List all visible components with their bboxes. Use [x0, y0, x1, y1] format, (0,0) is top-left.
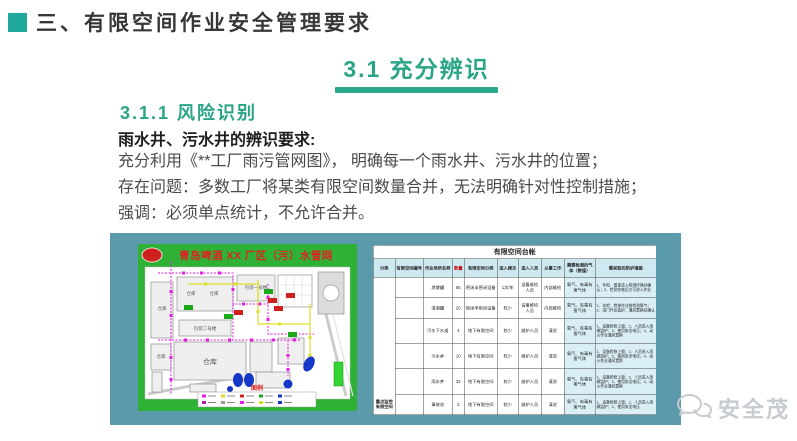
- cell-gas: 氧气、有毒有害气体: [564, 394, 595, 415]
- col-header: 需要检测的气体（数值）: [564, 259, 595, 278]
- cell-qty: 10: [452, 344, 464, 369]
- slide: 三、有限空间作业安全管理要求 3.1 充分辨识 3.1.1 风险识别 雨水井、污…: [0, 0, 797, 441]
- cell-freq: 1次/年: [497, 277, 518, 297]
- col-header: 数量: [452, 259, 464, 278]
- cell-gas: 氧气、有毒有害气体: [564, 369, 595, 394]
- table-title-row: 有限空间台帐: [373, 245, 656, 259]
- cell-work: 内部维检: [541, 277, 564, 297]
- cell-work: 清淤: [541, 344, 564, 369]
- cell-gas: 氧气、有毒有害气体: [564, 298, 595, 318]
- brand-name: 安全茂: [718, 392, 790, 424]
- cell-type: 地下有限空间: [464, 369, 497, 394]
- figure-panel: 青岛啤酒 XX 厂区（污）水管网: [110, 233, 681, 425]
- section-underline: [335, 87, 497, 93]
- col-header: 有限空间编号: [395, 259, 423, 278]
- requirement-heading: 雨水井、污水井的辨识要求:: [118, 126, 315, 150]
- cell-measures: 1、设备检修上锁；2、人员进入须做监护；3、使用安全电压；4、动火作业通风置换: [595, 344, 656, 369]
- cell-code: [395, 369, 423, 394]
- cell-people: 设备维检人员: [518, 277, 541, 297]
- cell-type: 密闭半密闭设备: [464, 298, 497, 318]
- cell-name: 清酒罐: [423, 298, 452, 318]
- col-header: 作业场所名称: [423, 259, 452, 278]
- title-bullet-square: [8, 13, 27, 32]
- cell-code: [395, 298, 423, 318]
- cell-people: 设备维检人员: [518, 298, 541, 318]
- cell-name: 污水井: [423, 344, 452, 369]
- cell-name: 雨水井: [423, 369, 452, 394]
- cell-type: 地下有限空间: [464, 394, 497, 415]
- cell-freq: 较少: [497, 344, 518, 369]
- col-header: 需采取的防护措施: [595, 259, 656, 278]
- cell-code: [395, 318, 423, 343]
- cell-code: [395, 344, 423, 369]
- cell-code: [395, 394, 423, 415]
- cell-work: 清淤: [541, 369, 564, 394]
- cell-qty: 2: [452, 394, 464, 415]
- body-line-3: 强调：必须单点统计，不允许合并。: [118, 201, 646, 227]
- map-legend-box: [198, 392, 316, 407]
- map-legend-title: 图例: [251, 384, 263, 392]
- ledger-table: 有限空间台帐分类有限空间编号作业场所名称数量有限空间分类进入频次进入人员从事工作…: [373, 245, 656, 415]
- table-row: 事故池2地下有限空间较少维护人员清淤氧气、有毒有害气体1、设备检修上锁；2、人员…: [373, 394, 656, 415]
- table-row: 污水下水道4地下有限空间较少维护人员清淤氧气、有毒有害气体1、设备检修上锁；2、…: [373, 318, 656, 343]
- body-line-2: 存在问题：多数工厂将某类有限空间数量合并，无法明确针对性控制措施；: [118, 175, 646, 201]
- table-header-row: 分类有限空间编号作业场所名称数量有限空间分类进入频次进入人员从事工作需要检测的气…: [373, 259, 656, 278]
- col-header: 分类: [373, 259, 395, 278]
- cell-qty: 65: [452, 277, 464, 297]
- map-image: 青岛啤酒 XX 厂区（污）水管网: [138, 244, 357, 411]
- slide-header: 三、有限空间作业安全管理要求: [8, 7, 372, 37]
- section-title: 3.1 充分辨识: [335, 50, 497, 84]
- cell-gas: 氧气、有毒有害气体: [564, 277, 595, 297]
- cell-gas: 氧气、有毒有害气体: [564, 318, 595, 343]
- category-cell: 重点监控有限空间: [373, 277, 395, 415]
- wechat-icon: [676, 393, 712, 423]
- svg-text:仓库: 仓库: [157, 353, 166, 360]
- cell-type: 地下有限空间: [464, 344, 497, 369]
- cell-freq: 较少: [497, 369, 518, 394]
- cell-measures: 1、设备检修上锁；2、人员进入须做监护；3、使用安全电压；4、动火作业通风置换: [595, 369, 656, 394]
- cell-name: 发酵罐: [423, 277, 452, 297]
- col-header: 进入人员: [518, 259, 541, 278]
- cell-freq: 较少: [497, 318, 518, 343]
- body-text: 充分利用《**工厂雨污管网图》， 明确每一个雨水井、污水井的位置； 存在问题：多…: [118, 149, 646, 227]
- subsection-title: 3.1.1 风险识别: [120, 99, 257, 125]
- table-row: 重点监控有限空间发酵罐65密闭半密闭设备1次/年设备维检人员内部维检氧气、有毒有…: [373, 277, 656, 297]
- svg-text:仓库: 仓库: [187, 290, 196, 297]
- table-title: 有限空间台帐: [373, 245, 656, 259]
- col-header: 从事工作: [541, 259, 564, 278]
- ledger-figure: 有限空间台帐分类有限空间编号作业场所名称数量有限空间分类进入频次进入人员从事工作…: [373, 245, 656, 415]
- cell-qty: 32: [452, 369, 464, 394]
- cell-qty: 4: [452, 318, 464, 343]
- section-heading: 3.1 充分辨识: [0, 50, 797, 93]
- cell-people: 维护人员: [518, 344, 541, 369]
- cell-people: 维护人员: [518, 369, 541, 394]
- cell-qty: 20: [452, 298, 464, 318]
- cell-gas: 氧气、有毒有害气体: [564, 344, 595, 369]
- col-header: 进入频次: [497, 259, 518, 278]
- cell-code: [395, 277, 423, 297]
- svg-text:包装二号楼: 包装二号楼: [194, 325, 217, 332]
- body-line-1: 充分利用《**工厂雨污管网图》， 明确每一个雨水井、污水井的位置；: [118, 149, 646, 175]
- cell-people: 维护人员: [518, 394, 541, 415]
- cell-measures: 1、设备检修上锁；2、人员进入须做监护；3、使用安全电压: [595, 394, 656, 415]
- cell-freq: 较少: [497, 394, 518, 415]
- cell-measures: 1、设备检修上锁；2、人员进入须做监护；3、使用安全电压；4、动火作业通风置换: [595, 318, 656, 343]
- brand-watermark: 安全茂: [676, 392, 790, 424]
- cell-name: 事故池: [423, 394, 452, 415]
- map-title: 青岛啤酒 XX 厂区（污）水管网: [179, 249, 333, 262]
- cell-work: 清淤: [541, 318, 564, 343]
- cell-measures: 1、年检、检修作业前检测氧气；2、进门作业监护、通风置换后确认: [595, 298, 656, 318]
- cell-type: 地下有限空间: [464, 318, 497, 343]
- cell-work: 清淤: [541, 394, 564, 415]
- table-row: 清酒罐20密闭半密闭设备较少设备维检人员内部维检氧气、有毒有害气体1、年检、检修…: [373, 298, 656, 318]
- cell-measures: 1、年检、普查进入检测环境并确认；2、检测合格后方可进入作业: [595, 277, 656, 297]
- svg-text:仓库: 仓库: [158, 305, 167, 312]
- pipe-network-map: 青岛啤酒 XX 厂区（污）水管网: [138, 244, 357, 411]
- svg-text:仓库: 仓库: [210, 290, 219, 297]
- cell-work: 内部维检: [541, 298, 564, 318]
- cell-name: 污水下水道: [423, 318, 452, 343]
- brewery-logo-badge: [142, 248, 162, 262]
- cell-people: 维护人员: [518, 318, 541, 343]
- cell-freq: 较少: [497, 298, 518, 318]
- slide-title: 三、有限空间作业安全管理要求: [36, 7, 372, 37]
- table-row: 雨水井32地下有限空间较少维护人员清淤氧气、有毒有害气体1、设备检修上锁；2、人…: [373, 369, 656, 394]
- table-row: 污水井10地下有限空间较少维护人员清淤氧气、有毒有害气体1、设备检修上锁；2、人…: [373, 344, 656, 369]
- col-header: 有限空间分类: [464, 259, 497, 278]
- cell-type: 密闭半密闭设备: [464, 277, 497, 297]
- svg-text:仓库: 仓库: [203, 357, 217, 366]
